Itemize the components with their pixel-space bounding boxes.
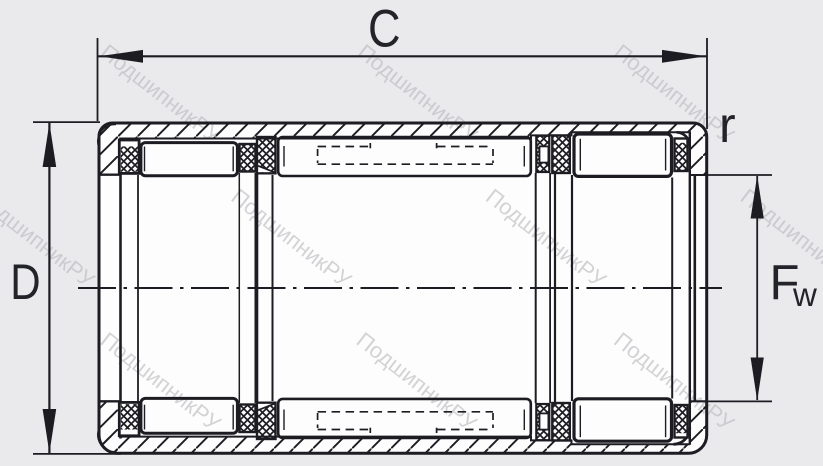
svg-text:r: r <box>719 97 736 153</box>
svg-text:D: D <box>10 253 40 309</box>
svg-text:C: C <box>368 0 401 58</box>
svg-text:w: w <box>792 276 817 313</box>
